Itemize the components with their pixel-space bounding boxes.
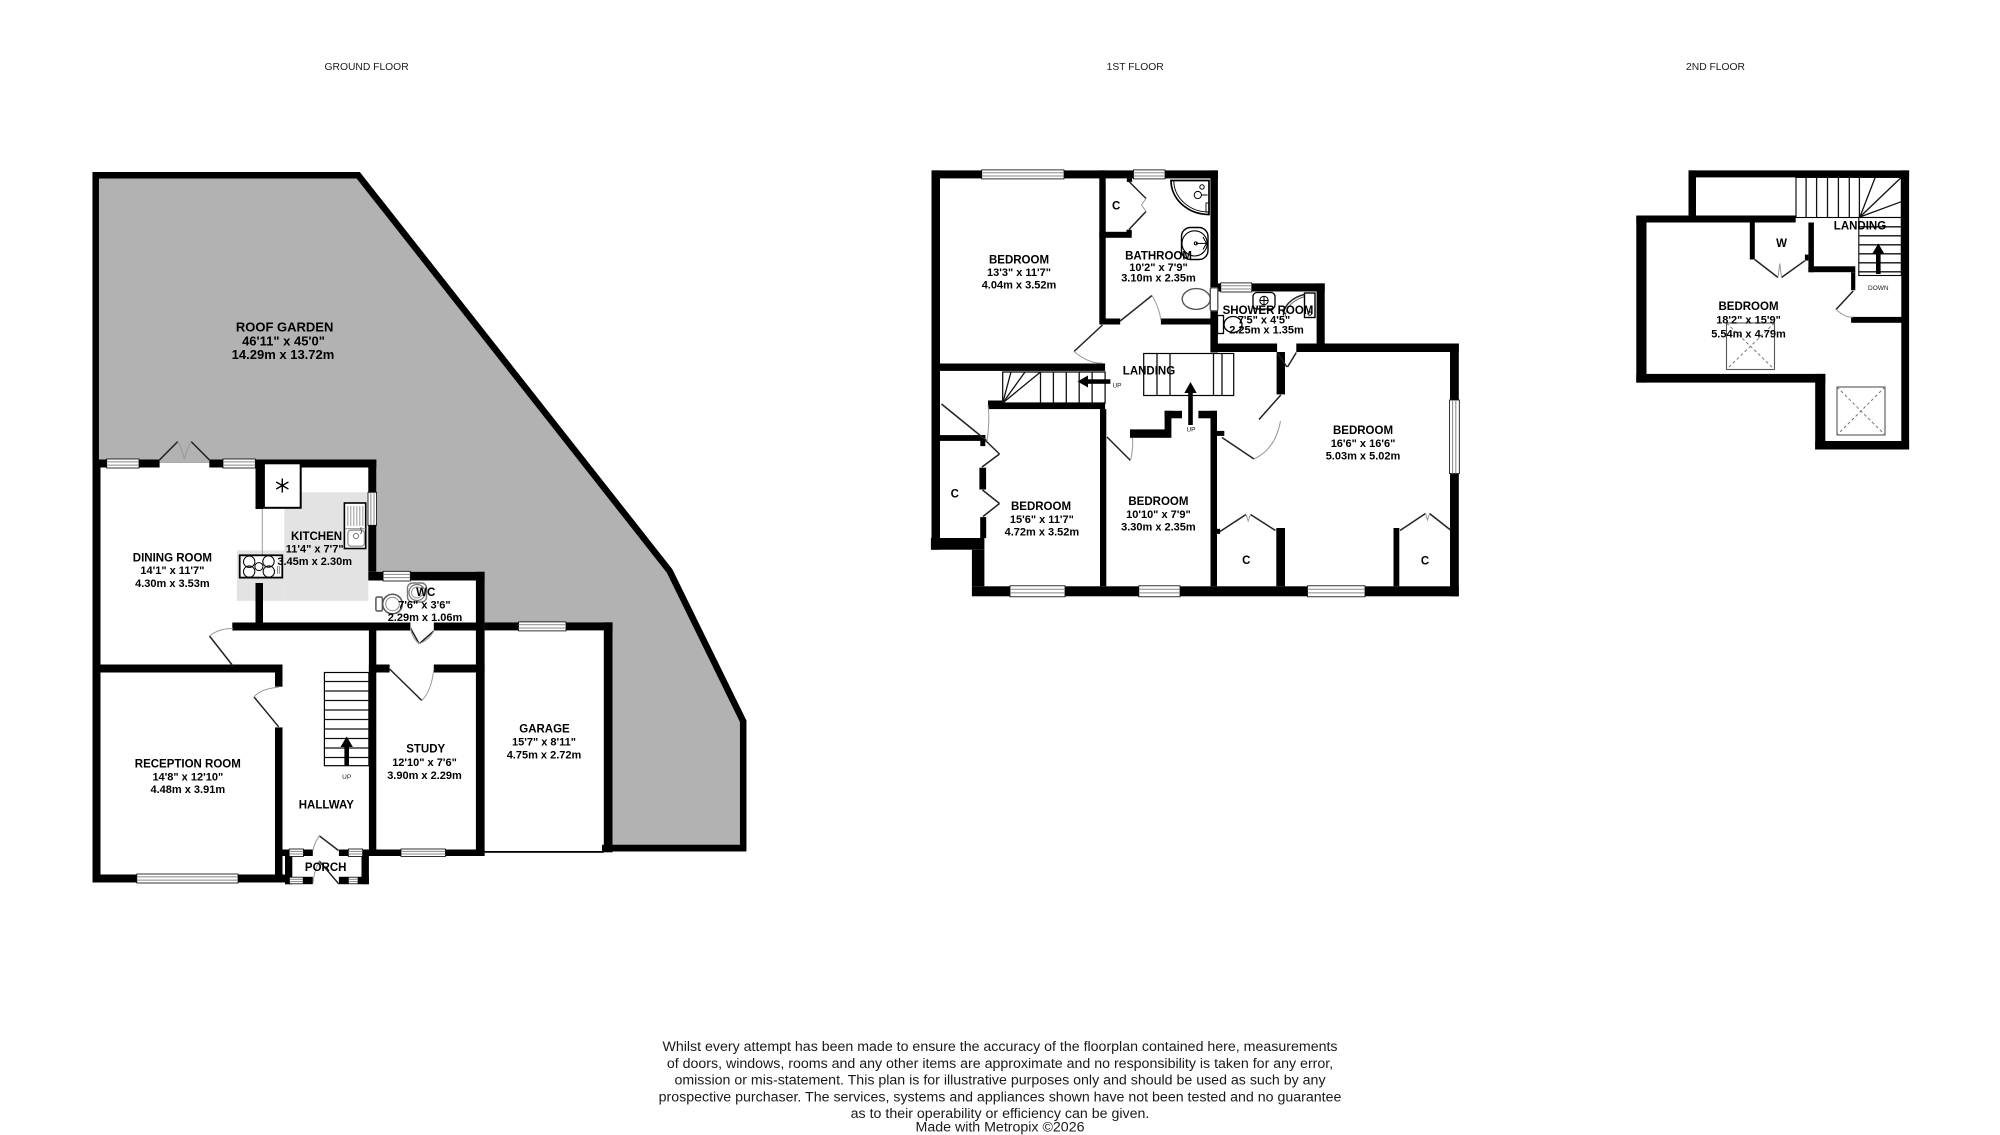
svg-text:KITCHEN: KITCHEN: [291, 531, 342, 543]
svg-text:16'6" x 16'6": 16'6" x 16'6": [1331, 438, 1396, 450]
svg-text:4.75m x 2.72m: 4.75m x 2.72m: [507, 750, 582, 762]
svg-text:C: C: [951, 489, 959, 501]
svg-text:3.45m x 2.30m: 3.45m x 2.30m: [277, 556, 352, 568]
svg-text:3.10m x 2.35m: 3.10m x 2.35m: [1121, 273, 1196, 285]
svg-text:STUDY: STUDY: [406, 744, 445, 756]
svg-text:4.48m x 3.91m: 4.48m x 3.91m: [150, 784, 225, 796]
svg-text:BEDROOM: BEDROOM: [1718, 301, 1778, 313]
svg-text:15'7" x 8'11": 15'7" x 8'11": [512, 737, 576, 749]
svg-text:BEDROOM: BEDROOM: [989, 255, 1049, 267]
svg-text:Whilst every attempt has been: Whilst every attempt has been made to en…: [662, 1039, 1337, 1055]
svg-text:W: W: [1776, 238, 1787, 250]
svg-text:BEDROOM: BEDROOM: [1128, 496, 1188, 508]
svg-text:3.30m x 2.35m: 3.30m x 2.35m: [1121, 521, 1196, 533]
svg-text:UP: UP: [1112, 383, 1121, 390]
svg-text:14.29m x 13.72m: 14.29m x 13.72m: [232, 347, 335, 362]
svg-text:14'8" x 12'10": 14'8" x 12'10": [152, 771, 223, 783]
svg-text:2ND FLOOR: 2ND FLOOR: [1686, 62, 1745, 73]
svg-text:HALLWAY: HALLWAY: [299, 800, 354, 812]
svg-text:GROUND FLOOR: GROUND FLOOR: [325, 62, 409, 73]
svg-text:Made with Metropix ©2026: Made with Metropix ©2026: [916, 1120, 1085, 1135]
svg-text:5.54m x 4.79m: 5.54m x 4.79m: [1711, 328, 1786, 340]
svg-text:18'2" x 15'9": 18'2" x 15'9": [1716, 314, 1781, 326]
svg-text:DINING ROOM: DINING ROOM: [133, 553, 212, 565]
svg-text:4.04m x 3.52m: 4.04m x 3.52m: [982, 279, 1057, 291]
svg-text:UP: UP: [342, 774, 351, 781]
svg-text:C: C: [1421, 556, 1429, 568]
svg-text:of doors, windows, rooms and a: of doors, windows, rooms and any other i…: [667, 1056, 1333, 1072]
svg-text:11'4" x 7'7": 11'4" x 7'7": [286, 544, 344, 556]
svg-text:4.30m x 3.53m: 4.30m x 3.53m: [135, 578, 210, 590]
svg-text:10'10" x 7'9": 10'10" x 7'9": [1126, 509, 1191, 521]
svg-text:3.90m x 2.29m: 3.90m x 2.29m: [387, 770, 462, 782]
svg-text:BATHROOM: BATHROOM: [1125, 250, 1192, 262]
svg-text:DOWN: DOWN: [1868, 285, 1889, 292]
svg-text:LANDING: LANDING: [1834, 221, 1886, 233]
svg-text:PORCH: PORCH: [305, 862, 347, 874]
svg-text:5.03m x 5.02m: 5.03m x 5.02m: [1326, 450, 1401, 462]
svg-text:2.29m x 1.06m: 2.29m x 1.06m: [388, 612, 463, 624]
svg-text:prospective purchaser. The ser: prospective purchaser. The services, sys…: [659, 1089, 1342, 1105]
svg-text:C: C: [1242, 555, 1250, 567]
svg-text:C: C: [1112, 201, 1120, 213]
svg-text:GARAGE: GARAGE: [519, 723, 570, 735]
svg-text:13'3" x 11'7": 13'3" x 11'7": [987, 267, 1051, 279]
svg-text:LANDING: LANDING: [1123, 366, 1175, 378]
svg-text:WC: WC: [416, 587, 435, 599]
svg-text:1ST FLOOR: 1ST FLOOR: [1107, 62, 1164, 73]
svg-text:BEDROOM: BEDROOM: [1333, 425, 1393, 437]
svg-text:15'6" x 11'7": 15'6" x 11'7": [1010, 514, 1074, 526]
svg-text:46'11" x 45'0": 46'11" x 45'0": [242, 333, 325, 348]
svg-text:2.25m x 1.35m: 2.25m x 1.35m: [1229, 324, 1304, 336]
svg-text:12'10" x 7'6": 12'10" x 7'6": [392, 757, 457, 769]
svg-text:omission or mis-statement. Thi: omission or mis-statement. This plan is …: [674, 1073, 1326, 1089]
svg-text:7'6" x 3'6": 7'6" x 3'6": [398, 599, 450, 611]
svg-text:UP: UP: [1186, 427, 1195, 434]
svg-text:BEDROOM: BEDROOM: [1011, 501, 1071, 513]
svg-text:4.72m x 3.52m: 4.72m x 3.52m: [1005, 526, 1080, 538]
svg-text:14'1" x 11'7": 14'1" x 11'7": [140, 565, 204, 577]
svg-text:RECEPTION ROOM: RECEPTION ROOM: [135, 758, 241, 770]
